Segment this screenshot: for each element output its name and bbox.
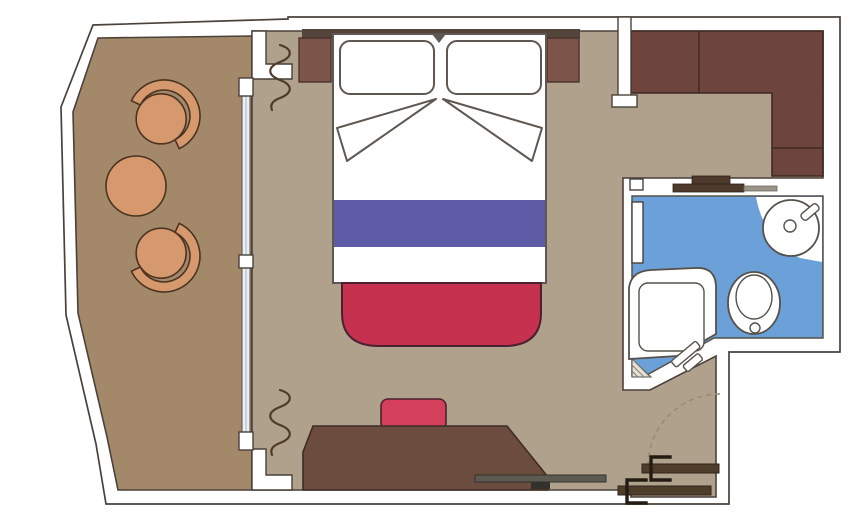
divider-wall: [618, 17, 631, 103]
balcony-table: [106, 156, 166, 216]
bathroom-shelf-lower: [673, 184, 744, 192]
bathroom-door-jamb: [630, 179, 643, 190]
wardrobe-handle: [531, 482, 550, 489]
glass-door-cap-bottom: [239, 432, 253, 450]
shower-tub-inner: [639, 283, 704, 351]
foot-bench: [342, 283, 541, 346]
bathroom-shelf-upper: [692, 176, 730, 184]
bathroom-shelf-glass: [744, 186, 777, 191]
bed-runner: [334, 200, 545, 247]
toilet-flush-button: [750, 323, 760, 333]
toilet-seat: [736, 275, 772, 319]
divider-wall-cap: [612, 95, 637, 107]
glass-door-cap-middle: [239, 255, 253, 268]
entry-door-panel-lower: [618, 486, 711, 495]
cabin-floor-plan: [0, 0, 860, 529]
nightstand-left: [299, 38, 331, 82]
washbasin-drain: [784, 220, 796, 232]
pillow-right: [447, 41, 541, 94]
floor-plan-canvas: [0, 0, 860, 529]
bathroom-door-leaf: [632, 202, 643, 263]
pillow-left: [340, 41, 434, 94]
glass-door-cap-top: [239, 78, 253, 96]
nightstand-right: [547, 38, 579, 82]
bed-area: [299, 29, 580, 283]
wardrobe-front: [475, 475, 606, 482]
entry-door-panel-upper: [642, 464, 719, 473]
